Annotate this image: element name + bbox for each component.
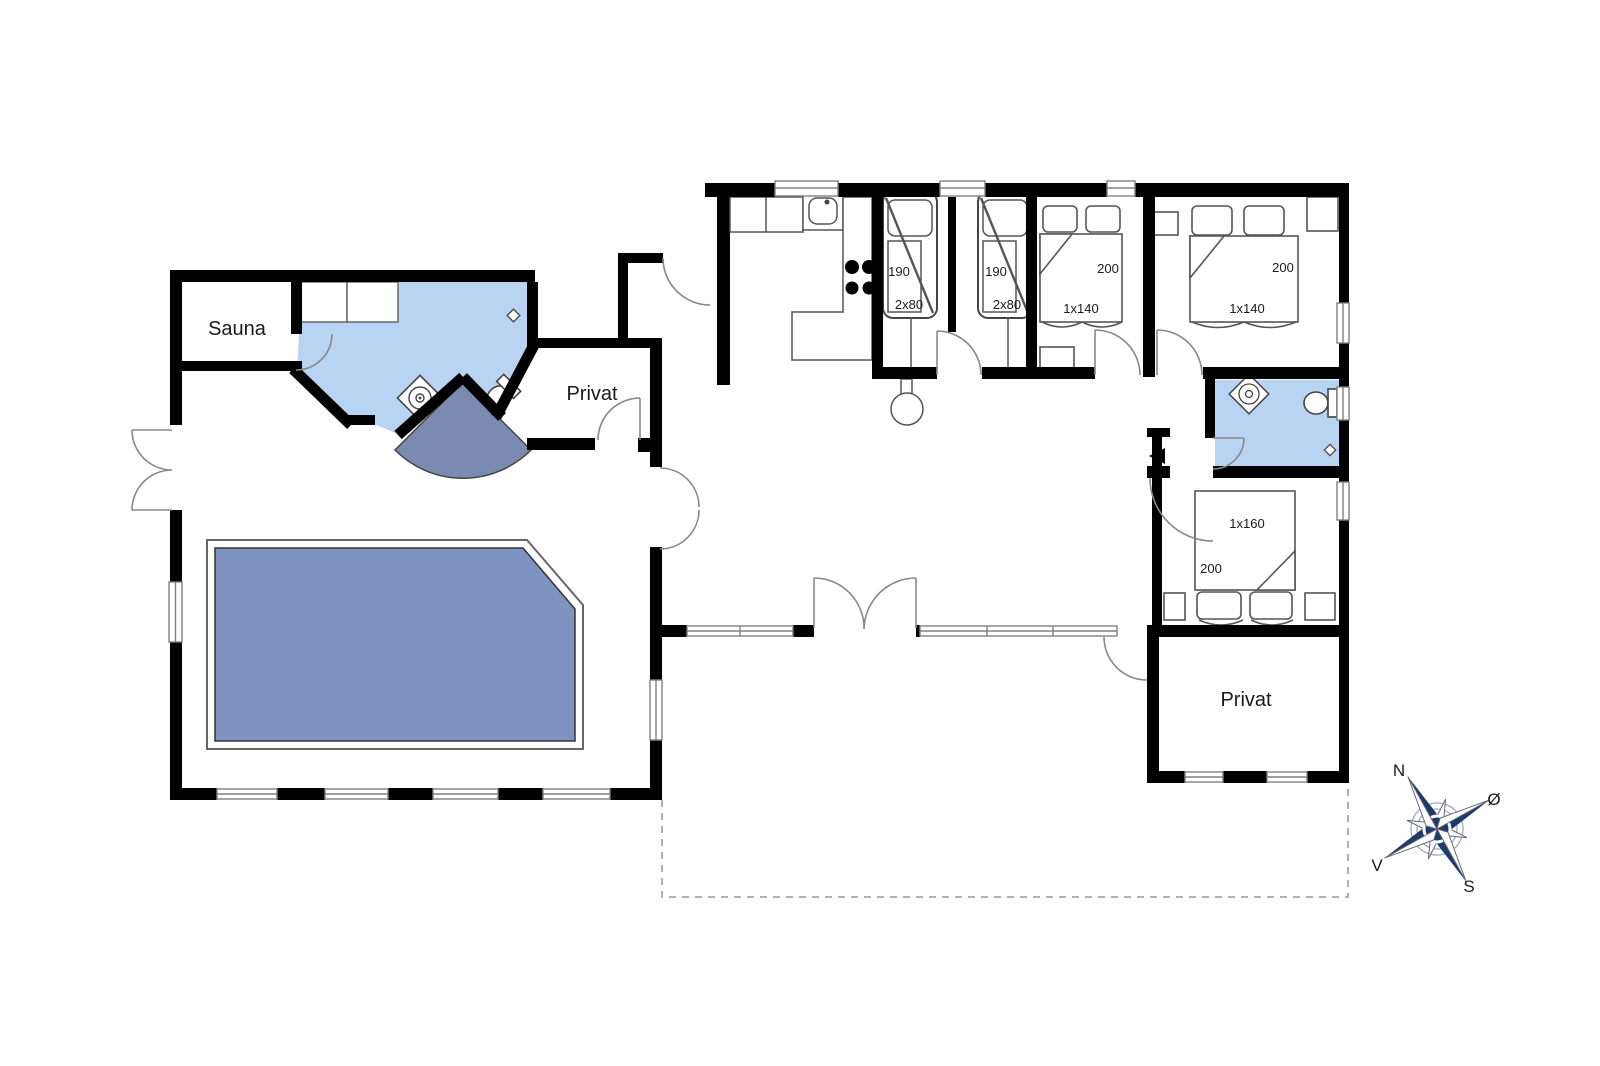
nightstand <box>1307 197 1338 231</box>
pool-water <box>215 548 575 741</box>
pool-building: Sauna Privat <box>132 183 730 800</box>
bedroom-right-door-swing <box>1157 330 1202 375</box>
bed-size-label: 200 <box>1272 260 1294 275</box>
bunk-bed <box>978 192 1032 371</box>
floorplan-page: Sauna Privat <box>0 0 1600 1066</box>
toilet-icon <box>1304 389 1337 417</box>
nightstand <box>1305 593 1335 620</box>
compass-east-label: Ø <box>1487 790 1500 809</box>
room-label-privat-main: Privat <box>1220 689 1272 711</box>
bath-bench <box>347 282 398 322</box>
swimming-pool <box>207 540 583 749</box>
double-bed <box>1164 491 1335 625</box>
west-double-door-swing <box>132 430 172 510</box>
floorplan-drawing: Sauna Privat <box>0 0 1600 1066</box>
bed-size-label: 1x140 <box>1063 301 1098 316</box>
double-bed <box>1040 189 1122 372</box>
room-label-privat-pool: Privat <box>566 383 618 405</box>
bedroom-mid-door-swing <box>1095 330 1140 375</box>
pool-double-door-swing <box>660 468 699 549</box>
nightstand <box>1164 593 1185 620</box>
bed-size-label: 200 <box>1097 261 1119 276</box>
bed-size-label: 200 <box>1200 561 1222 576</box>
bunk-bed <box>883 192 937 371</box>
compass-south-label: S <box>1463 877 1474 896</box>
entry-door-swing <box>663 258 710 305</box>
bed-size-label: 2x80 <box>993 297 1021 312</box>
compass-rose: N Ø S V <box>1355 747 1518 910</box>
terrace-french-door-swing <box>814 578 916 629</box>
terrace-outline <box>662 783 1348 897</box>
compass-west-label: V <box>1371 856 1383 875</box>
privat-main-door-swing <box>1104 637 1147 680</box>
compass-north-label: N <box>1393 761 1405 780</box>
room-label-sauna: Sauna <box>208 318 267 340</box>
bed-size-label: 190 <box>985 264 1007 279</box>
bath-bench <box>300 282 347 322</box>
bed-size-label: 190 <box>888 264 910 279</box>
bunkroom-door-swing <box>937 331 981 375</box>
bed-size-label: 2x80 <box>895 297 923 312</box>
kitchen-sink-icon <box>803 192 843 230</box>
kitchen <box>730 192 876 360</box>
ceiling-lamp-icon <box>891 379 923 425</box>
main-house: 190 2x80 190 2x80 200 1x140 200 1x140 1x… <box>662 181 1349 783</box>
bed-size-label: 1x160 <box>1229 516 1264 531</box>
bed-size-label: 1x140 <box>1229 301 1264 316</box>
